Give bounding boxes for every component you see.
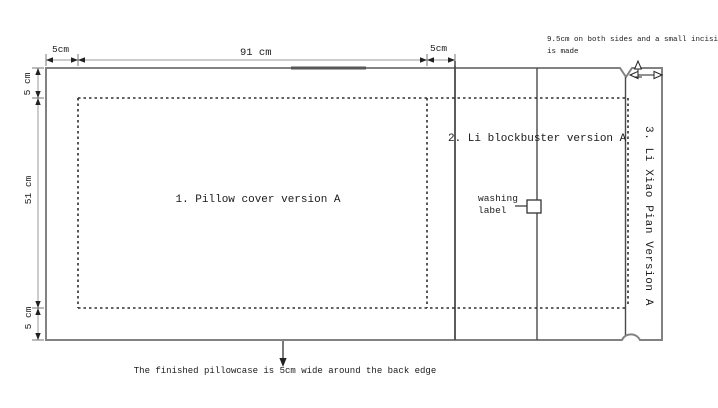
bottom-note: The finished pillowcase is 5cm wide arou… [134, 366, 436, 377]
diagram-linework [0, 0, 718, 408]
section1-label: 1. Pillow cover version A [175, 194, 340, 208]
dim-top-left-5cm: 5cm [52, 44, 69, 56]
dim-top-width-91cm: 91 cm [240, 47, 272, 60]
incision-note: 9.5cm on both sides and a small incision… [547, 35, 718, 58]
washing-label-text: washing label [478, 193, 528, 218]
dim-top-right-5cm: 5cm [430, 43, 447, 55]
incision-arrows [630, 61, 662, 79]
section3-label: 3. Li Xiao Pian Version A [640, 126, 654, 306]
pillowcase-pattern-diagram: 5cm 91 cm 5cm 5 cm 51 cm 5 cm 1. Pillow … [0, 0, 718, 408]
seam-dotted-lines [78, 98, 628, 308]
dim-left-height-51cm: 51 cm [23, 176, 35, 205]
section2-label: 2. Li blockbuster version A [448, 133, 626, 147]
bottom-note-arrow [279, 341, 286, 367]
dim-left-top-5cm: 5 cm [22, 73, 34, 96]
outer-border [46, 68, 662, 340]
dim-left-bottom-5cm: 5 cm [23, 307, 35, 330]
